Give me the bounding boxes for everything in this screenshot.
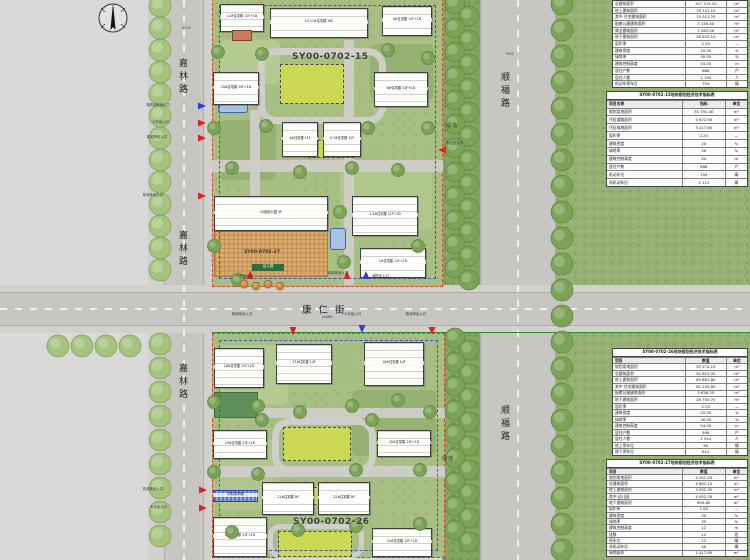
entrance-label: 人行出入口 xyxy=(236,273,253,278)
building-label: 非机动车棚 xyxy=(213,493,258,497)
entrance-label: 机动车出入口 xyxy=(232,311,252,316)
plot-label-top: SY00-0702-15 xyxy=(292,52,369,62)
entrance-label: 人行出入口 xyxy=(344,311,361,316)
entrance-label: 人行出入口 xyxy=(150,504,167,509)
entrance-label: 机动车出入口 xyxy=(143,192,163,197)
street-label-kangren-width: (40M) xyxy=(322,315,332,319)
entrance-label: 机动车出入口 xyxy=(143,486,163,491)
tree-highlight xyxy=(74,338,85,349)
building-label: 9#住宅楼 11F+1D xyxy=(382,18,432,22)
tree-highlight xyxy=(50,338,61,349)
table-row: 配套公建建筑面积3 145.40m² xyxy=(613,20,747,27)
building xyxy=(232,30,252,41)
tree-icon xyxy=(119,335,141,357)
building-label: 15#住宅楼 15F+1D xyxy=(213,86,259,90)
table-row: 居住户数686户 xyxy=(607,163,747,171)
building-label: 8#住宅楼 11F+1D xyxy=(374,87,428,91)
table-row: 地下建筑面积28 633.10m² xyxy=(613,33,747,40)
table-row: 商业建筑面积1 583.00m² xyxy=(613,27,747,34)
building-label: 12班幼儿园 3F xyxy=(214,211,328,215)
road-label-shunfu-bottom: 顺福路 xyxy=(498,405,511,444)
entrance-label: 人行出入口 xyxy=(446,140,463,145)
table-row: 代征绿地面积3 217.60m² xyxy=(607,123,747,131)
green-label-top: 绿地 xyxy=(446,122,458,129)
table-row: 地下停车位610辆 xyxy=(613,448,747,455)
building-label: 4#住宅楼 11F xyxy=(282,137,318,141)
north-arrow-compass xyxy=(99,3,127,32)
table-row: 规划用地面积35 791.40m² xyxy=(607,108,747,116)
table-row: 代征道路面积4 672.90m² xyxy=(607,115,747,123)
table-row: 绿地率30% xyxy=(607,147,747,155)
indicator-table-top-1: 总建筑面积107 374.20m²地上建筑面积78 741.10m²其中 住宅建… xyxy=(612,0,748,88)
dimension-label: 5143 xyxy=(182,26,191,30)
tree-icon xyxy=(71,335,93,357)
building-label: 20#住宅楼 11F+1D xyxy=(377,441,431,445)
indicator-table-top-2: SY00-0702-15地块规划经济技术指标表项目名称指标单位规划用地面积35 … xyxy=(606,91,748,187)
entrance-label: 非机动车出入口 xyxy=(146,102,170,107)
road-label-jialin-mid: 嘉林路 xyxy=(176,230,189,269)
road-label-shunfu-top: 顺福路 xyxy=(498,72,511,111)
shunfu-road-centerline xyxy=(517,0,519,560)
building-label: 17#住宅楼 14F xyxy=(276,361,332,365)
building-label: 5-7#住宅楼 11F xyxy=(323,137,361,141)
entrance-label: 人行出入口 xyxy=(152,119,169,124)
table-row: 居住人数2 195人 xyxy=(613,74,747,81)
kindergarten-tag: 幼儿园 xyxy=(252,264,284,271)
indicator-table-bottom-1: SY00-0702-26地块规划经济技术指标表项目数值单位规划用地面积29 27… xyxy=(612,348,748,456)
building-label: 22#住宅楼 9F xyxy=(318,496,370,500)
site-plan-canvas: SY00-0702-27 幼儿园 12#住宅楼 11F+1D10-11#住宅楼 … xyxy=(0,0,750,560)
table-row: 地上建筑面积78 741.10m² xyxy=(613,7,747,14)
road-label-jialin-bottom: 嘉林路 xyxy=(176,363,189,402)
building-label: 10-11#住宅楼 16F xyxy=(270,20,368,24)
green-boundary-line xyxy=(212,332,750,333)
table-row: 机动车位704辆 xyxy=(607,170,747,178)
entrance-label: 机动车出入口 xyxy=(406,311,426,316)
table-row: 绿地面积1 417.90m² xyxy=(607,550,747,556)
tree-icon xyxy=(95,335,117,357)
table-row: 建筑密度20% xyxy=(607,139,747,147)
building-label: 21#住宅楼 9F xyxy=(262,496,314,500)
road-label-jialin-top: 嘉林路 xyxy=(176,58,189,97)
jialin-road-east-sidewalk xyxy=(204,0,212,560)
table-row: 建筑控制高度54m xyxy=(607,155,747,163)
plot-label-bottom: SY00-0702-26 xyxy=(293,517,370,527)
table-row: 建筑控制高度54.00m xyxy=(613,60,747,67)
tree-icon xyxy=(47,335,69,357)
building-label: 19#住宅楼 11F+1D xyxy=(213,442,267,446)
green-strip-lower xyxy=(442,332,480,560)
kangren-street-centerline xyxy=(0,308,750,310)
table-row: 建筑密度20.00% xyxy=(613,47,747,54)
entrance-label: 消防出入口 xyxy=(372,273,389,278)
tree-highlight xyxy=(122,338,133,349)
building-label: 1#住宅楼 11F+1D xyxy=(360,260,426,264)
building-label: 16#住宅楼 11F+1D xyxy=(214,365,264,369)
tree-highlight xyxy=(98,338,109,349)
table-title: SY00-0702-15地块规划经济技术指标表 xyxy=(607,92,747,100)
table-row: 项目名称指标单位 xyxy=(607,100,747,108)
table-title: SY00-0702-26地块规划经济技术指标表 xyxy=(613,349,747,357)
building-label: 18#住宅楼 14F xyxy=(364,361,424,365)
table-title: SY00-0702-27地块规划经济技术指标表 xyxy=(607,460,747,468)
building-label: 24#住宅楼 11F+1D xyxy=(372,540,432,544)
table-row: 居住户数686户 xyxy=(613,67,747,74)
kindergarten-plot-label: SY00-0702-27 xyxy=(244,250,280,255)
table-row: 非机动车位2 112辆 xyxy=(607,178,747,186)
table-row: 绿地率30.00% xyxy=(613,54,747,61)
jialin-road-west-sidewalk xyxy=(148,0,165,560)
dimension-label: 7603 xyxy=(505,52,514,56)
table-row: 容积率2.20— xyxy=(607,131,747,139)
entrance-label: 机动车出入口 xyxy=(147,134,167,139)
building-label: 12#住宅楼 11F+1D xyxy=(220,15,264,19)
table-row: 容积率2.20— xyxy=(613,40,747,47)
building-label: 23#住宅楼 11F+1D xyxy=(213,534,267,538)
entrance-label: 机动车出入口 xyxy=(328,270,348,275)
table-row: 机动车停车位704辆 xyxy=(613,80,747,87)
indicator-table-bottom-2: SY00-0702-27地块规划经济技术指标表项目数值单位规划用地面积4 051… xyxy=(606,459,748,557)
green-label-bottom: 绿地 xyxy=(442,455,454,462)
building-label: 2-3#住宅楼 11F+1D xyxy=(352,213,418,217)
table-row: 其中 住宅建筑面积74 012.70m² xyxy=(613,13,747,20)
